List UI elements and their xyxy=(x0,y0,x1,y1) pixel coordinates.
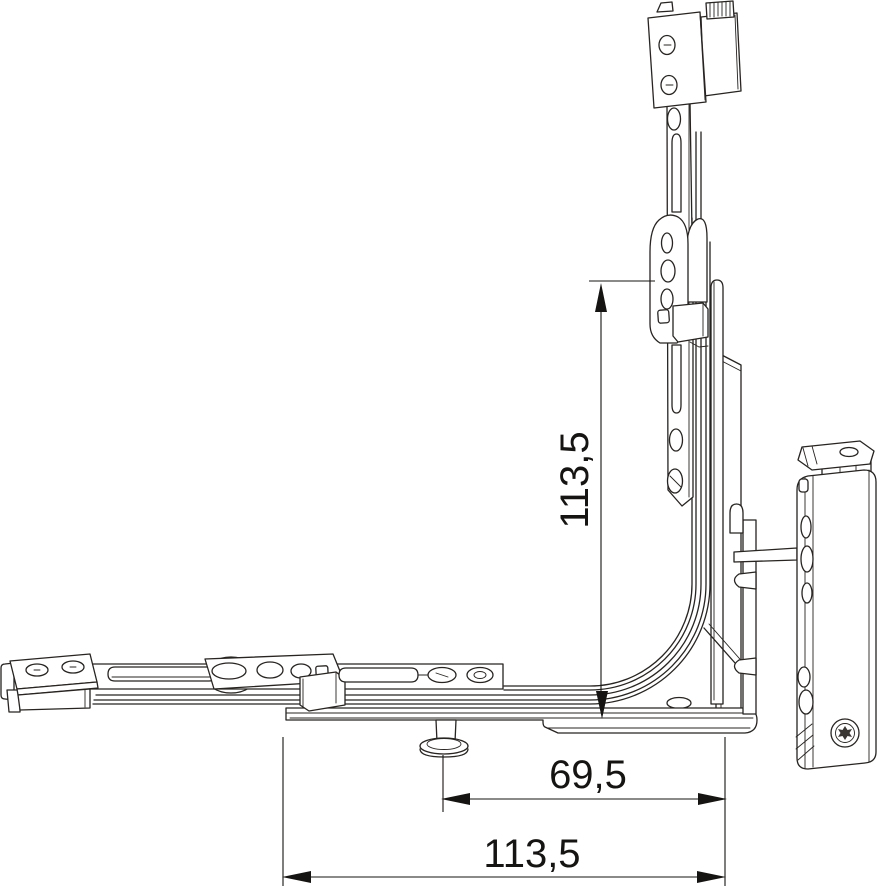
dim-arrow-right-icon xyxy=(698,793,727,805)
torx-screw xyxy=(831,719,859,747)
bottom-faceplate-bar xyxy=(286,708,757,733)
vertical-arm-slot-upper xyxy=(672,134,681,212)
channel-front-post xyxy=(711,280,723,704)
horizontal-stay-arm xyxy=(88,654,503,711)
dimension-label-horizontal-outer: 113,5 xyxy=(483,832,580,876)
left-end-cap xyxy=(1,654,98,712)
bracket-square-hole xyxy=(658,310,670,324)
bracket-hole-3 xyxy=(661,289,673,309)
dim-arrow-left-icon xyxy=(282,871,311,883)
upper-pivot-bracket xyxy=(650,215,708,347)
technical-drawing-canvas: 113,5 69,5 113,5 xyxy=(0,0,877,889)
receiver-tab xyxy=(730,504,743,533)
dim-arrow-left-icon xyxy=(441,793,470,805)
flange-hole-3 xyxy=(802,583,812,603)
dimension-label-horizontal-inner: 69,5 xyxy=(549,753,627,797)
dimension-horizontal-outer: 113,5 xyxy=(282,737,726,886)
vertical-arm-slot-lower xyxy=(672,345,681,413)
corner-hinge-drawing: 113,5 69,5 113,5 xyxy=(0,0,877,889)
bracket-hole-2 xyxy=(661,260,675,282)
link-hole-2 xyxy=(257,662,283,678)
vertical-arm-hole-top xyxy=(668,108,681,130)
arm-hole-2 xyxy=(467,668,493,683)
flange-hole-5 xyxy=(799,690,813,714)
hinge-plate-hole xyxy=(840,448,858,457)
corner-channel-rails xyxy=(93,132,710,704)
dim-arrow-right-icon xyxy=(697,871,726,883)
dim-arrow-up-icon xyxy=(595,283,607,312)
flange-hole-4 xyxy=(798,667,810,687)
arm-slot-right xyxy=(339,668,418,682)
clamp-block-horizontal xyxy=(300,672,345,711)
vertical-arm-hole-mid xyxy=(670,429,683,451)
flange-hole-1 xyxy=(801,516,811,538)
frame-hinge xyxy=(796,441,876,769)
arm-slot-left xyxy=(108,667,216,681)
mushroom-pin xyxy=(420,720,468,757)
flange-hole-2 xyxy=(801,546,813,572)
gusset-hole xyxy=(667,698,691,709)
dimension-vertical: 113,5 xyxy=(553,281,655,719)
bracket-hole-1 xyxy=(662,233,673,253)
dimension-label-vertical: 113,5 xyxy=(553,431,597,528)
top-cap-plate xyxy=(648,12,706,108)
link-hole-1 xyxy=(212,663,246,679)
top-end-cap xyxy=(648,1,741,108)
